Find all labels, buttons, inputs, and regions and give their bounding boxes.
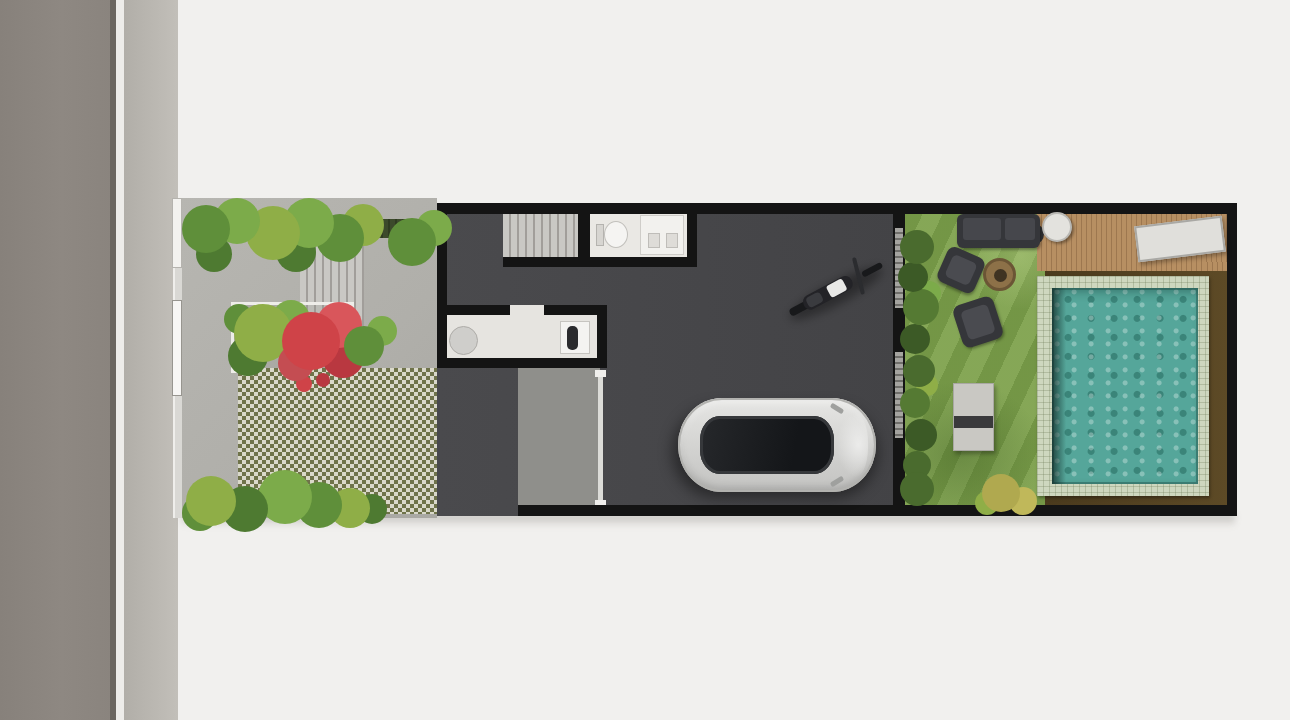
car-roof-glass: [700, 416, 834, 474]
red-bougainvillea: [260, 300, 262, 302]
fire-pit: [983, 258, 1016, 291]
toilet-tank: [596, 224, 604, 246]
sink-basin: [648, 233, 660, 248]
wall-east: [1227, 203, 1237, 516]
sliding-rail-door-lower: [895, 352, 903, 438]
wall-stair-bath-divider: [578, 212, 590, 257]
pool-water: [1052, 288, 1198, 484]
deck-side-table: [1042, 212, 1072, 242]
garage-door-track: [598, 373, 603, 503]
sliding-rail-door-upper: [895, 228, 903, 308]
wall-south: [518, 505, 1237, 516]
garden-side-hedge: [905, 230, 907, 232]
car: [678, 398, 876, 492]
garage-door-post: [595, 370, 606, 377]
curb-line: [116, 0, 124, 720]
wall-bath-east: [687, 212, 697, 257]
floor-plan-render: [0, 0, 1290, 720]
garden-bench: [953, 383, 994, 451]
wall-stair-bath-south: [503, 257, 697, 267]
outdoor-sofa: [957, 214, 1040, 248]
shrub-cluster-front-top: [180, 200, 182, 202]
staircase: [503, 214, 578, 257]
round-table: [449, 326, 478, 355]
motorcycle: [780, 246, 892, 332]
planter-box: [231, 302, 354, 373]
wall-north: [437, 203, 1237, 214]
toilet: [604, 221, 628, 248]
side-gate: [172, 300, 182, 396]
garden-bottom-shrubs: [900, 470, 902, 472]
sidewalk: [124, 0, 178, 720]
shrub-beside-planter: [340, 310, 342, 312]
pool-edge-shadow: [1052, 288, 1066, 484]
counter-sink: [560, 321, 590, 354]
fern-border-front: [180, 470, 182, 472]
car-hood-highlight: [836, 412, 868, 478]
bathroom-vanity: [640, 215, 684, 255]
carport-apron: [518, 368, 600, 505]
trimmed-hedge: [362, 219, 432, 238]
front-fence-post: [172, 198, 182, 268]
kitchen-door-opening: [510, 305, 544, 315]
palm-plant-cluster: [230, 300, 232, 302]
street-road: [0, 0, 112, 720]
sink-basin: [666, 233, 678, 248]
